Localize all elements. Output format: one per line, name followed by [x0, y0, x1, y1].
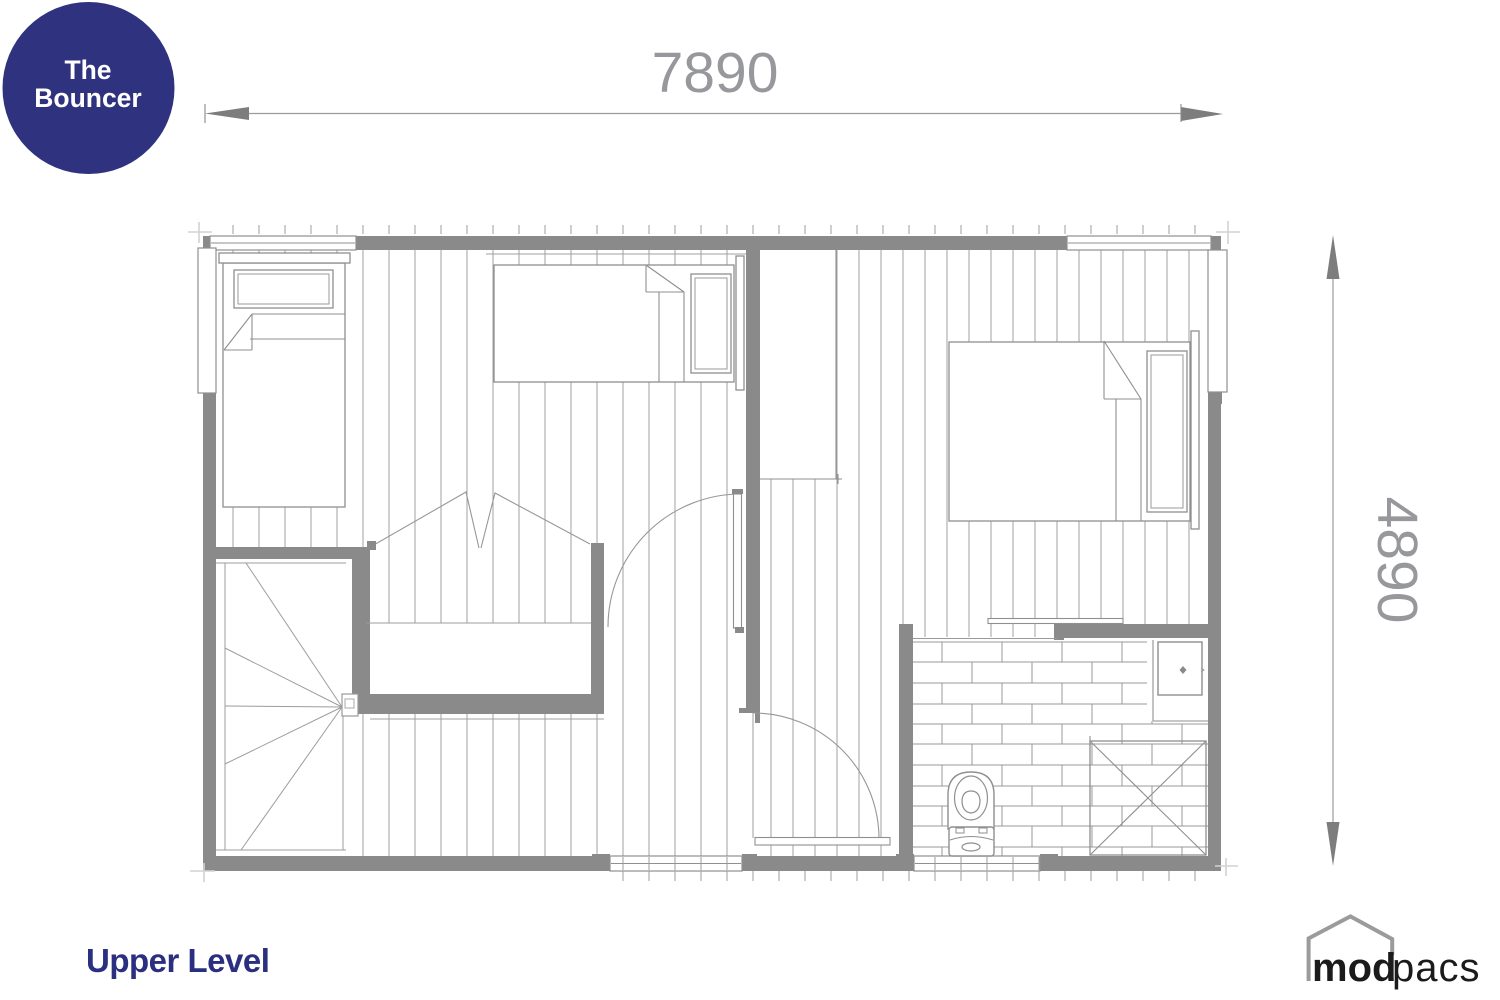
svg-text:Bouncer: Bouncer — [34, 83, 142, 113]
svg-text:The: The — [64, 55, 111, 85]
svg-text:Upper Level: Upper Level — [86, 942, 269, 979]
svg-text:mod: mod — [1312, 946, 1396, 990]
svg-text:pacs: pacs — [1392, 946, 1481, 990]
svg-text:7890: 7890 — [652, 41, 779, 105]
svg-text:4890: 4890 — [1365, 497, 1429, 624]
